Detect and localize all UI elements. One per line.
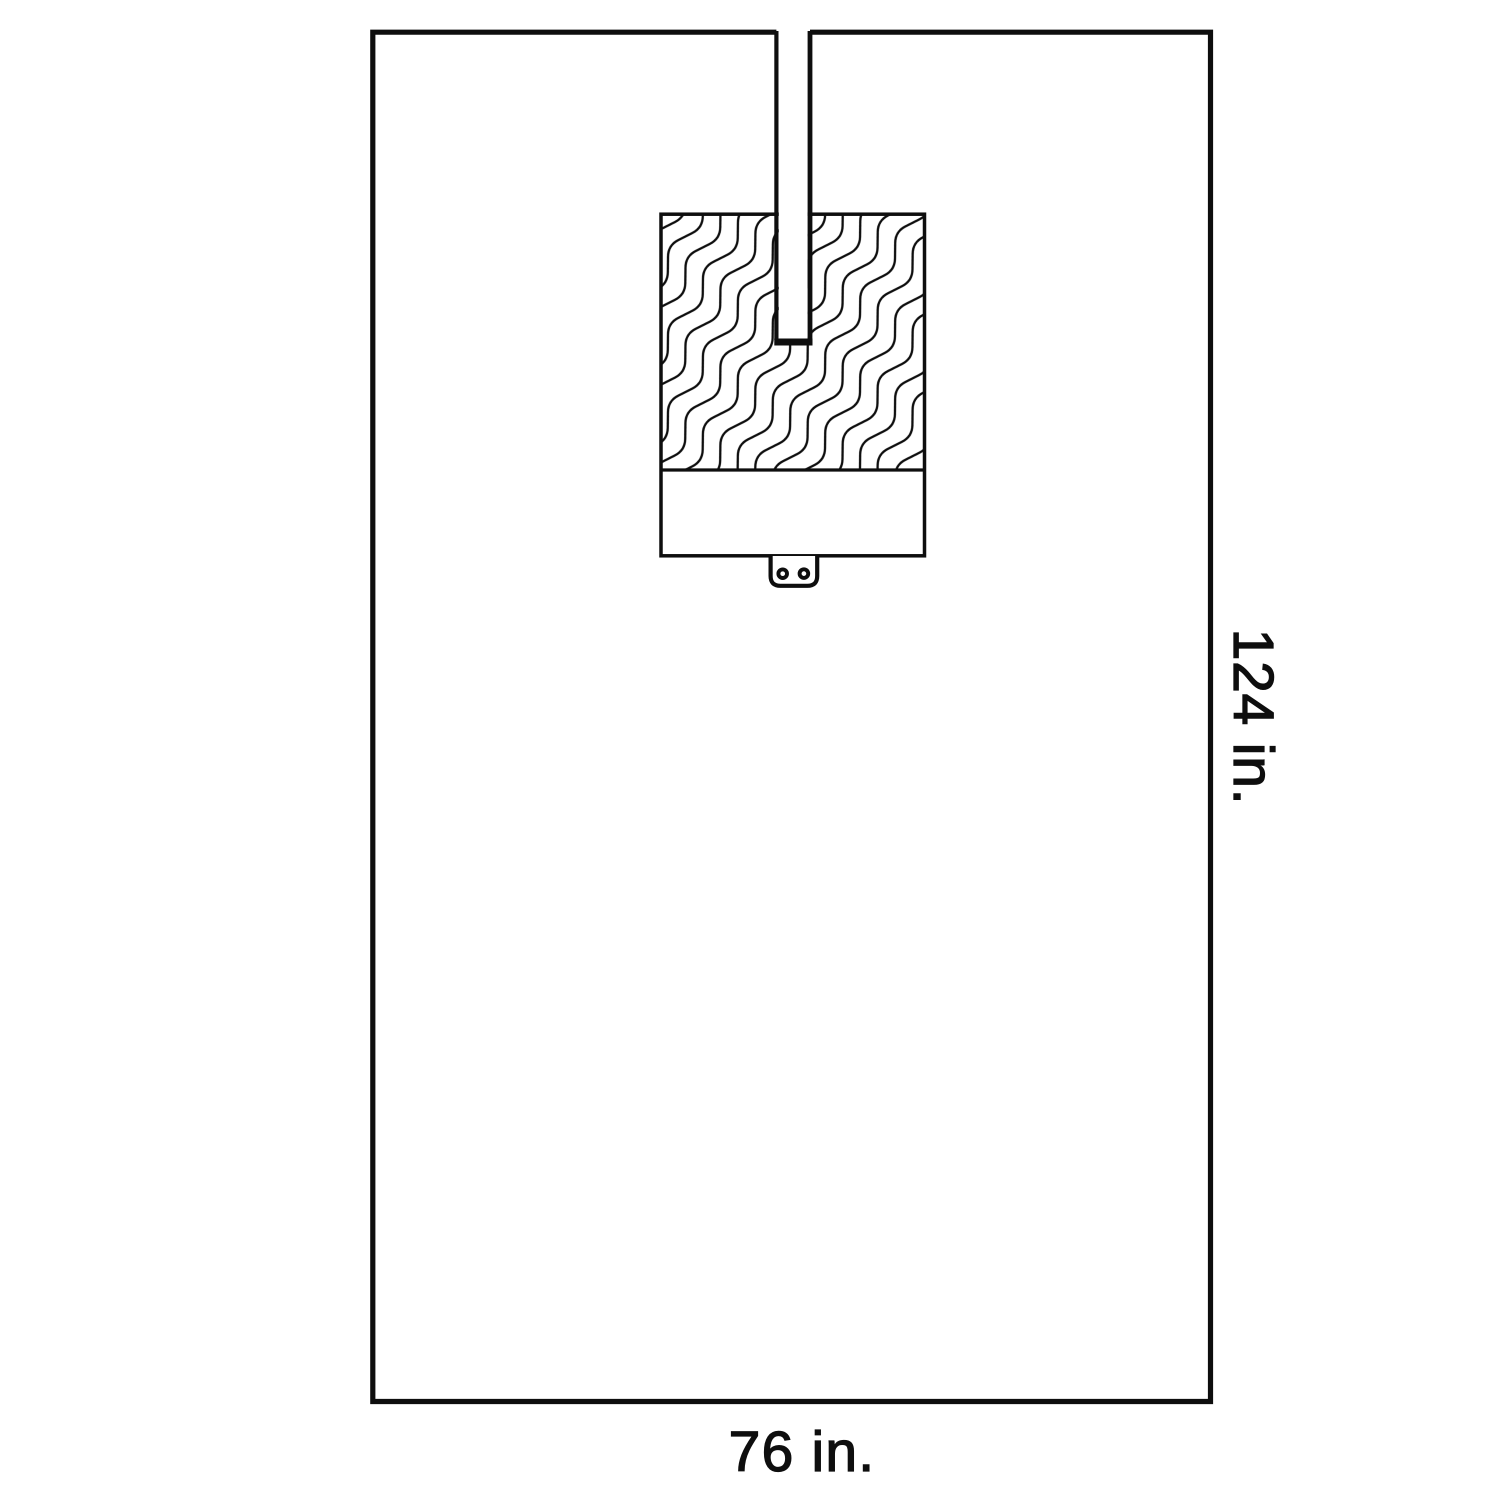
svg-text:76 in.: 76 in. [729, 1420, 876, 1484]
svg-text:124 in.: 124 in. [1221, 629, 1285, 806]
